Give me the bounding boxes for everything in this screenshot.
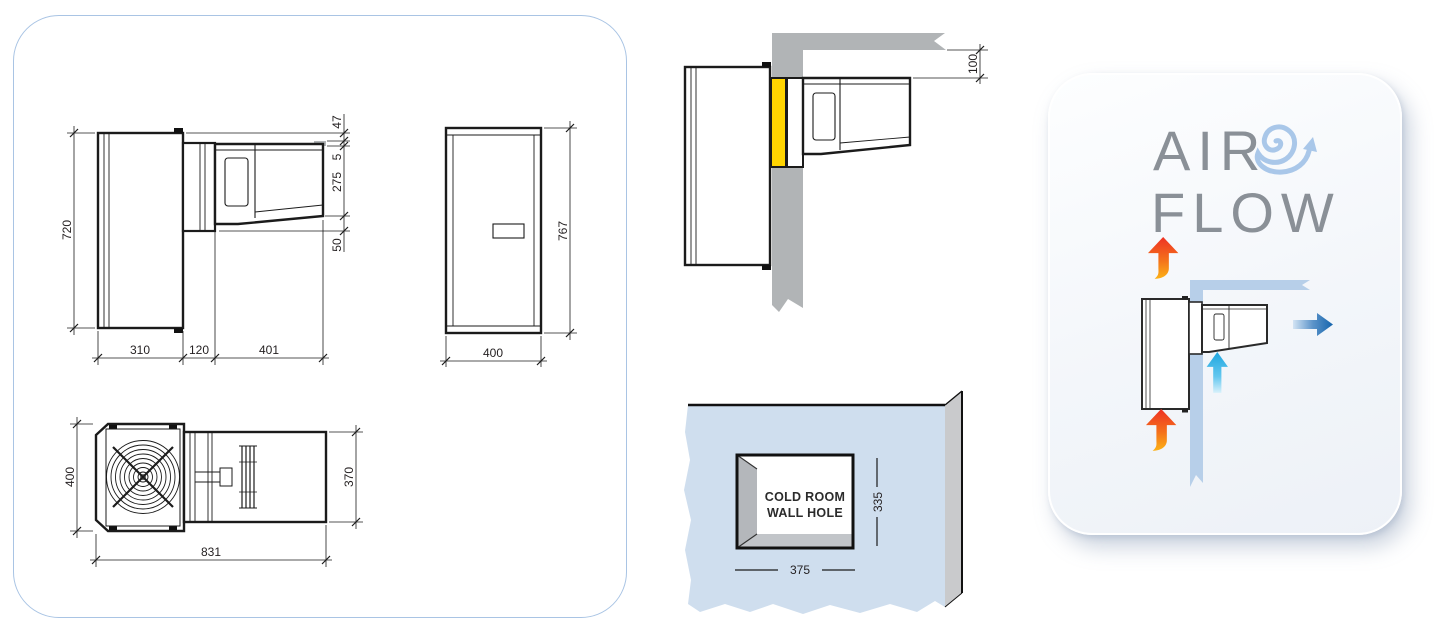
dim-label-47: 47 xyxy=(330,115,344,129)
dim-label-120: 120 xyxy=(189,343,209,357)
dim-label-5: 5 xyxy=(330,153,344,160)
top-view: 400 370 831 xyxy=(63,417,363,567)
mount-condensing-body xyxy=(803,78,910,154)
mount-evaporator-body xyxy=(685,67,770,265)
hole-left-bevel xyxy=(737,455,757,548)
exhaust-air-arrow xyxy=(1293,313,1333,336)
dim-400-front: 400 xyxy=(440,336,547,367)
side-wall-section xyxy=(183,143,215,231)
dim-label-375: 375 xyxy=(790,563,810,577)
wall-hole-label-2: WALL HOLE xyxy=(767,506,843,520)
coldroom-wall-side xyxy=(945,391,962,607)
dim-label-400-top: 400 xyxy=(63,467,77,487)
installation-diagrams-svg: 100 COLD ROOM WALL HOLE 335 375 xyxy=(655,20,1015,625)
swirl-arrowhead xyxy=(1303,137,1317,152)
wall-hole-view: COLD ROOM WALL HOLE 335 375 xyxy=(684,391,962,614)
cold-air-arrow xyxy=(1207,352,1228,393)
dim-label-50: 50 xyxy=(330,238,344,252)
dim-400-top: 400 xyxy=(63,417,93,538)
dim-label-400-front: 400 xyxy=(483,346,503,360)
wall-hole-label-1: COLD ROOM xyxy=(765,490,845,504)
hot-air-arrow-bottom xyxy=(1146,409,1176,451)
side-condensing-body xyxy=(215,144,323,224)
top-condensing-body xyxy=(184,432,326,522)
mount-tab-top xyxy=(174,128,183,133)
front-view: 767 400 xyxy=(440,121,577,367)
wall-spacer-strip xyxy=(787,78,803,167)
vertical-wall xyxy=(772,33,803,312)
dim-720: 720 xyxy=(60,126,95,335)
dim-label-275: 275 xyxy=(330,172,344,192)
air-swirl-icon xyxy=(1232,111,1352,211)
dim-label-831: 831 xyxy=(201,545,221,559)
wall-insulation-strip xyxy=(771,78,786,167)
dimension-drawings-panel: 720 310 120 401 xyxy=(13,15,627,618)
dim-label-720: 720 xyxy=(60,220,74,240)
dim-label-335: 335 xyxy=(871,492,885,512)
flow-unit xyxy=(1142,296,1267,413)
dim-label-767: 767 xyxy=(556,221,570,241)
flow-ceiling-wall xyxy=(1190,280,1310,290)
hot-air-arrow-top xyxy=(1148,237,1178,279)
dim-label-401: 401 xyxy=(259,343,279,357)
airflow-panel: AIR FLOW xyxy=(1048,73,1402,535)
wall-mount-view: 100 xyxy=(685,33,988,312)
mount-tab-bottom xyxy=(174,328,183,333)
dim-label-370: 370 xyxy=(342,467,356,487)
side-evaporator-body xyxy=(98,133,183,328)
dim-label-100: 100 xyxy=(966,54,980,74)
dim-label-310: 310 xyxy=(130,343,150,357)
dimension-drawings-svg: 720 310 120 401 xyxy=(14,16,625,616)
dim-370: 370 xyxy=(329,425,363,529)
side-view: 720 310 120 401 xyxy=(60,114,350,365)
dim-767: 767 xyxy=(544,121,577,340)
wall-hole: COLD ROOM WALL HOLE xyxy=(737,455,853,548)
airflow-schematic xyxy=(1105,225,1350,520)
